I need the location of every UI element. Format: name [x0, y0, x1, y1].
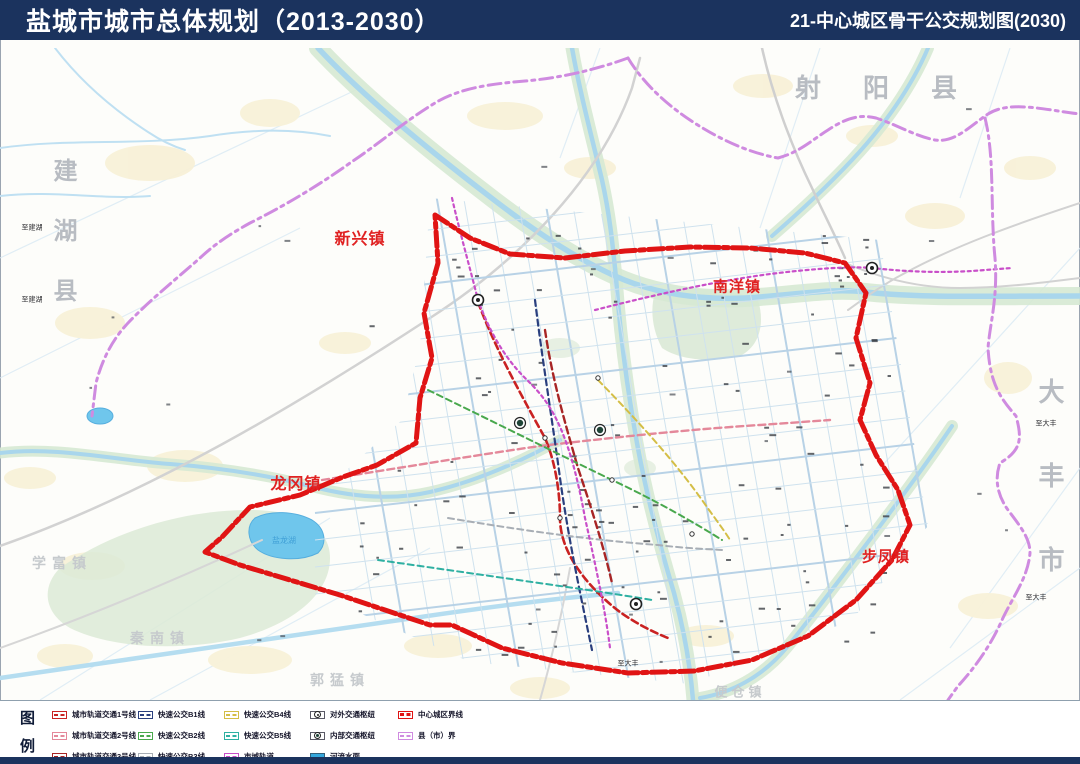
bottom-bar: [0, 757, 1080, 764]
legend-item-brt-b4: 快速公交B4线: [224, 709, 291, 720]
legend-item-brt-b5: 快速公交B5线: [224, 730, 291, 741]
station-dot: [690, 532, 694, 536]
legend-title-char: 图: [20, 707, 35, 728]
legend-item-brt-b2: 快速公交B2线: [138, 730, 205, 741]
legend-item-rail2: 城市轨道交通2号线: [52, 730, 136, 741]
legend-title-char: 例: [20, 735, 35, 756]
legend-item-internal-hub: 内部交通枢纽: [310, 730, 375, 741]
title-bar: 盐城市城市总体规划（2013-2030） 21-中心城区骨干公交规划图(2030…: [0, 0, 1080, 40]
brt-b3: [448, 518, 722, 550]
river-bank: [318, 48, 1080, 298]
legend-item-brt-b1: 快速公交B1线: [138, 709, 205, 720]
station-dot: [558, 516, 562, 520]
sheet-title: 21-中心城区骨干公交规划图(2030): [790, 7, 1080, 33]
legend-title: 图 例: [20, 707, 35, 756]
legend-item-county-boundary: 县（市）界: [398, 730, 456, 741]
river-xinyanggang: [318, 48, 1080, 298]
internal-hub-icon: [314, 732, 321, 739]
legend-item-central-boundary: 中心城区界线: [398, 709, 463, 720]
station-dot: [610, 478, 614, 482]
lake-yanlong: [249, 513, 324, 559]
station-dot: [543, 436, 547, 440]
map-canvas[interactable]: [0, 48, 1080, 700]
external-hub-icon: [314, 711, 321, 718]
station-dot: [596, 376, 600, 380]
legend-panel: 图 例 城市轨道交通1号线 城市轨道交通2号线 城市轨道交通3号线 快速公交B1…: [0, 700, 1080, 758]
planning-map-page: 盐城市城市总体规划（2013-2030） 21-中心城区骨干公交规划图(2030…: [0, 0, 1080, 764]
legend-item-rail1: 城市轨道交通1号线: [52, 709, 136, 720]
brt-b2: [428, 390, 722, 540]
legend-item-external-hub: 对外交通枢纽: [310, 709, 375, 720]
page-title: 盐城市城市总体规划（2013-2030）: [0, 2, 441, 38]
